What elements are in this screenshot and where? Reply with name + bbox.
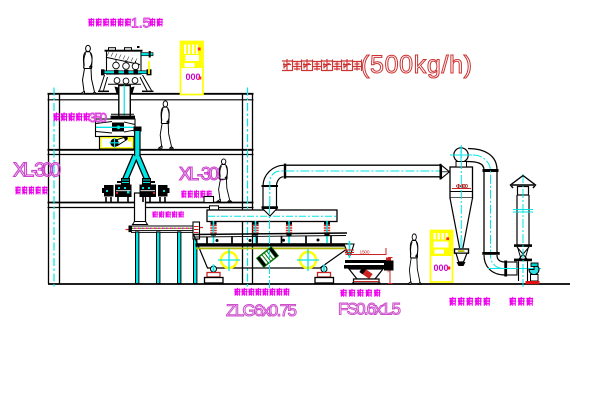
svg-text:XL-300: XL-300 [13,160,61,182]
svg-text:000: 000 [434,263,449,273]
svg-text:1.5: 1.5 [131,15,151,31]
svg-text:000: 000 [186,72,201,82]
svg-text:ZLG6x0.75: ZLG6x0.75 [226,301,297,320]
svg-text:FS0.6x1.5: FS0.6x1.5 [338,300,401,319]
svg-text:(500kg/h): (500kg/h) [361,51,472,79]
svg-text:Φ400: Φ400 [456,184,468,190]
svg-text:1500: 1500 [360,250,370,256]
svg-text:350: 350 [89,110,107,125]
